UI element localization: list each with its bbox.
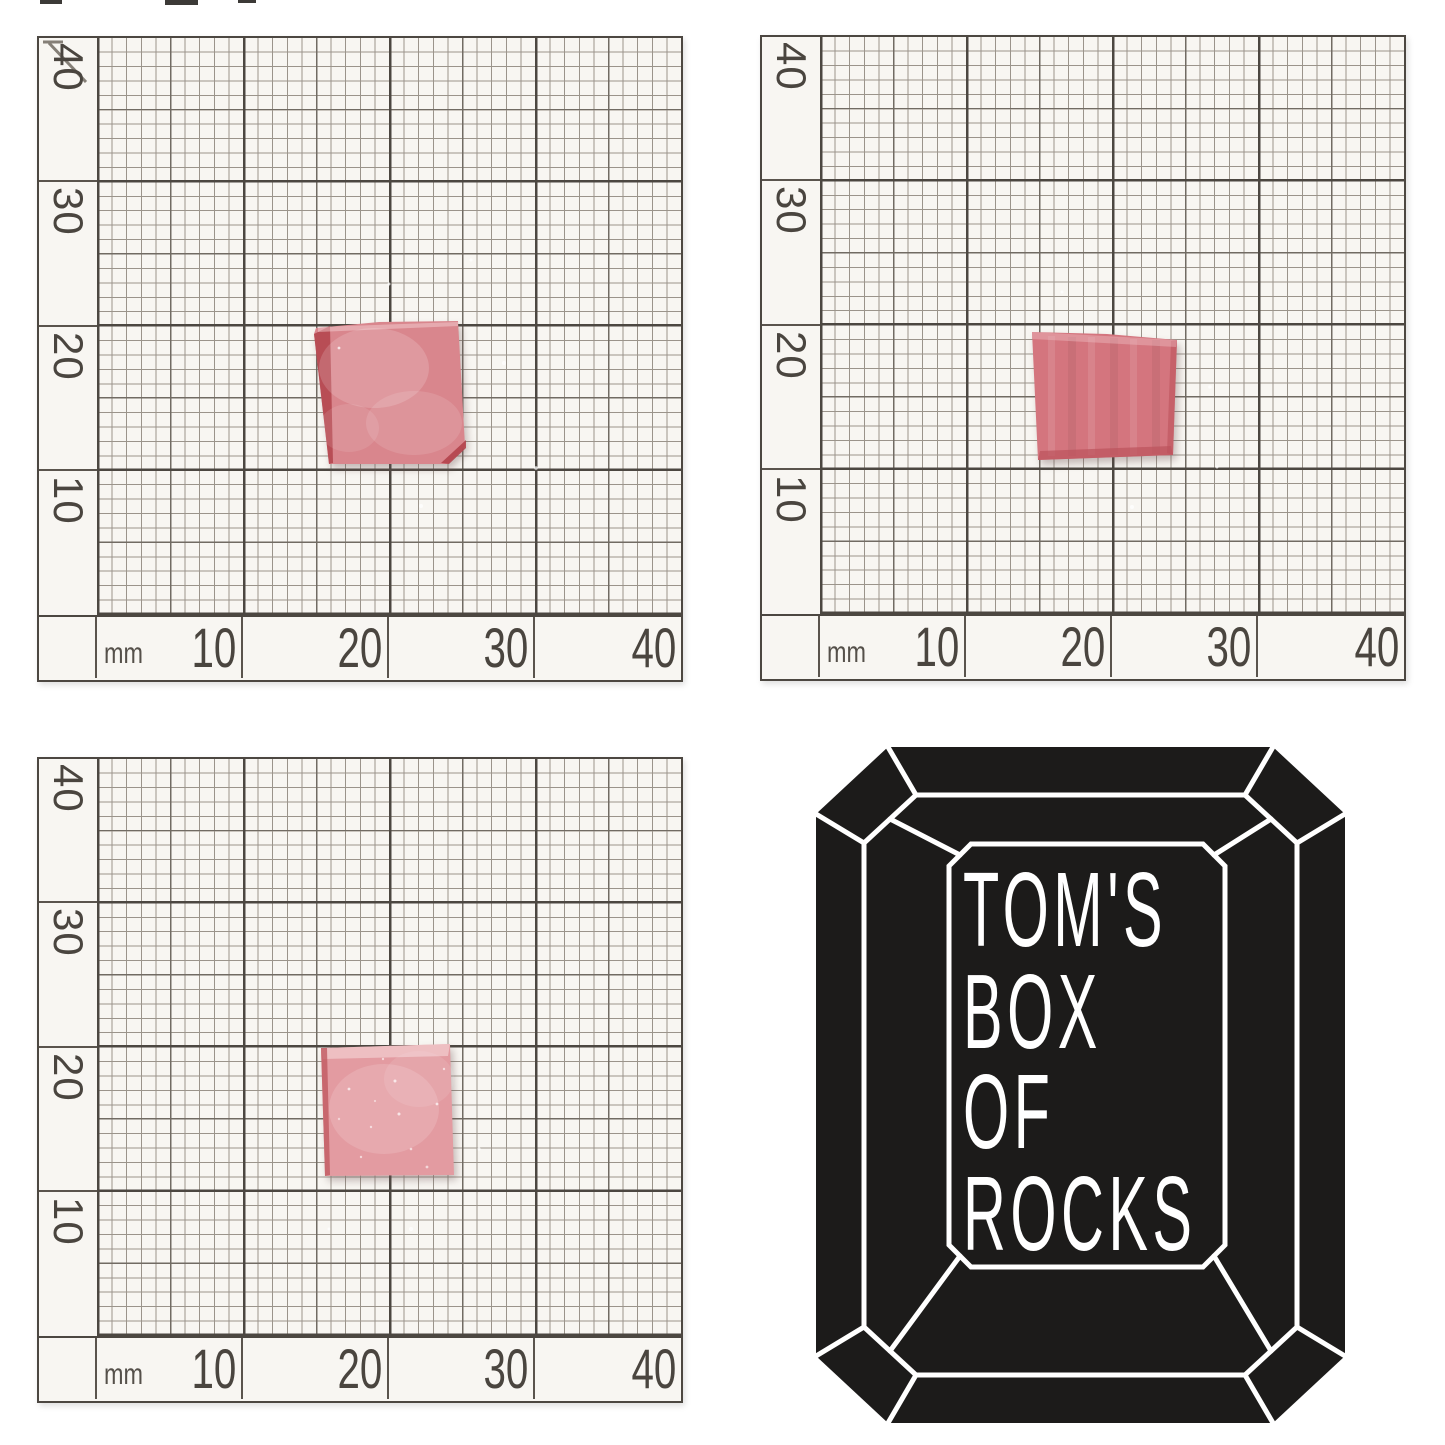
y-axis-ruler: 40 30 20 10 — [39, 759, 97, 1336]
x-axis-label-10: 10 — [914, 622, 959, 672]
unit-label: mm — [104, 1358, 143, 1392]
unit-label: mm — [104, 637, 143, 671]
logo-line-3: OF — [963, 1053, 1054, 1171]
gem-silhouette — [816, 747, 1345, 1423]
mm-grid — [97, 38, 681, 615]
logo-line-4: ROCKS — [963, 1155, 1196, 1273]
y-axis-label-30: 30 — [44, 908, 92, 957]
x-axis-label-40: 40 — [1354, 622, 1399, 672]
x-axis-label-10: 10 — [191, 1344, 236, 1394]
x-axis-ruler: mm 10 20 30 40 — [762, 614, 1404, 677]
y-axis-label-20: 20 — [44, 332, 92, 381]
toms-box-of-rocks-logo: TOM'S BOX OF ROCKS — [816, 747, 1345, 1423]
x-axis-label-30: 30 — [1206, 622, 1251, 672]
cropped-print-mark — [165, 0, 198, 5]
mm-grid — [97, 759, 681, 1336]
measurement-photo-top-right: 40 30 20 10 mm 10 20 30 40 — [760, 35, 1406, 681]
y-axis-label-30: 30 — [767, 186, 815, 235]
y-axis-label-10: 10 — [44, 1197, 92, 1246]
y-axis-label-30: 30 — [44, 187, 92, 236]
x-axis-label-40: 40 — [631, 623, 676, 673]
x-axis-ruler: mm 10 20 30 40 — [39, 615, 681, 678]
mm-grid — [820, 37, 1404, 614]
x-axis-ruler: mm 10 20 30 40 — [39, 1336, 681, 1399]
measurement-photo-bottom-left: 40 30 20 10 mm 10 20 30 40 — [37, 757, 683, 1403]
logo-line-1: TOM'S — [963, 851, 1167, 969]
y-axis-ruler: 40 30 20 10 — [39, 38, 97, 615]
y-axis-label-20: 20 — [767, 331, 815, 380]
y-axis-ruler: 40 30 20 10 — [762, 37, 820, 614]
cropped-print-mark — [40, 0, 62, 4]
x-axis-label-20: 20 — [337, 623, 382, 673]
y-axis-label-40: 40 — [44, 764, 92, 813]
x-axis-label-30: 30 — [483, 623, 528, 673]
x-axis-label-40: 40 — [631, 1344, 676, 1394]
cropped-print-mark — [238, 0, 256, 3]
measurement-photo-top-left: 40 30 20 10 mm 10 20 30 40 — [37, 36, 683, 682]
y-axis-label-20: 20 — [44, 1053, 92, 1102]
y-axis-label-10: 10 — [767, 475, 815, 524]
y-axis-label-40: 40 — [767, 42, 815, 91]
y-axis-label-10: 10 — [44, 476, 92, 525]
collage-canvas: { "page": { "background": "#ffffff", "pa… — [0, 0, 1445, 1445]
x-axis-label-30: 30 — [483, 1344, 528, 1394]
x-axis-label-10: 10 — [191, 623, 236, 673]
x-axis-label-20: 20 — [337, 1344, 382, 1394]
unit-label: mm — [827, 636, 866, 670]
y-axis-label-40: 40 — [44, 43, 92, 92]
x-axis-label-20: 20 — [1060, 622, 1105, 672]
